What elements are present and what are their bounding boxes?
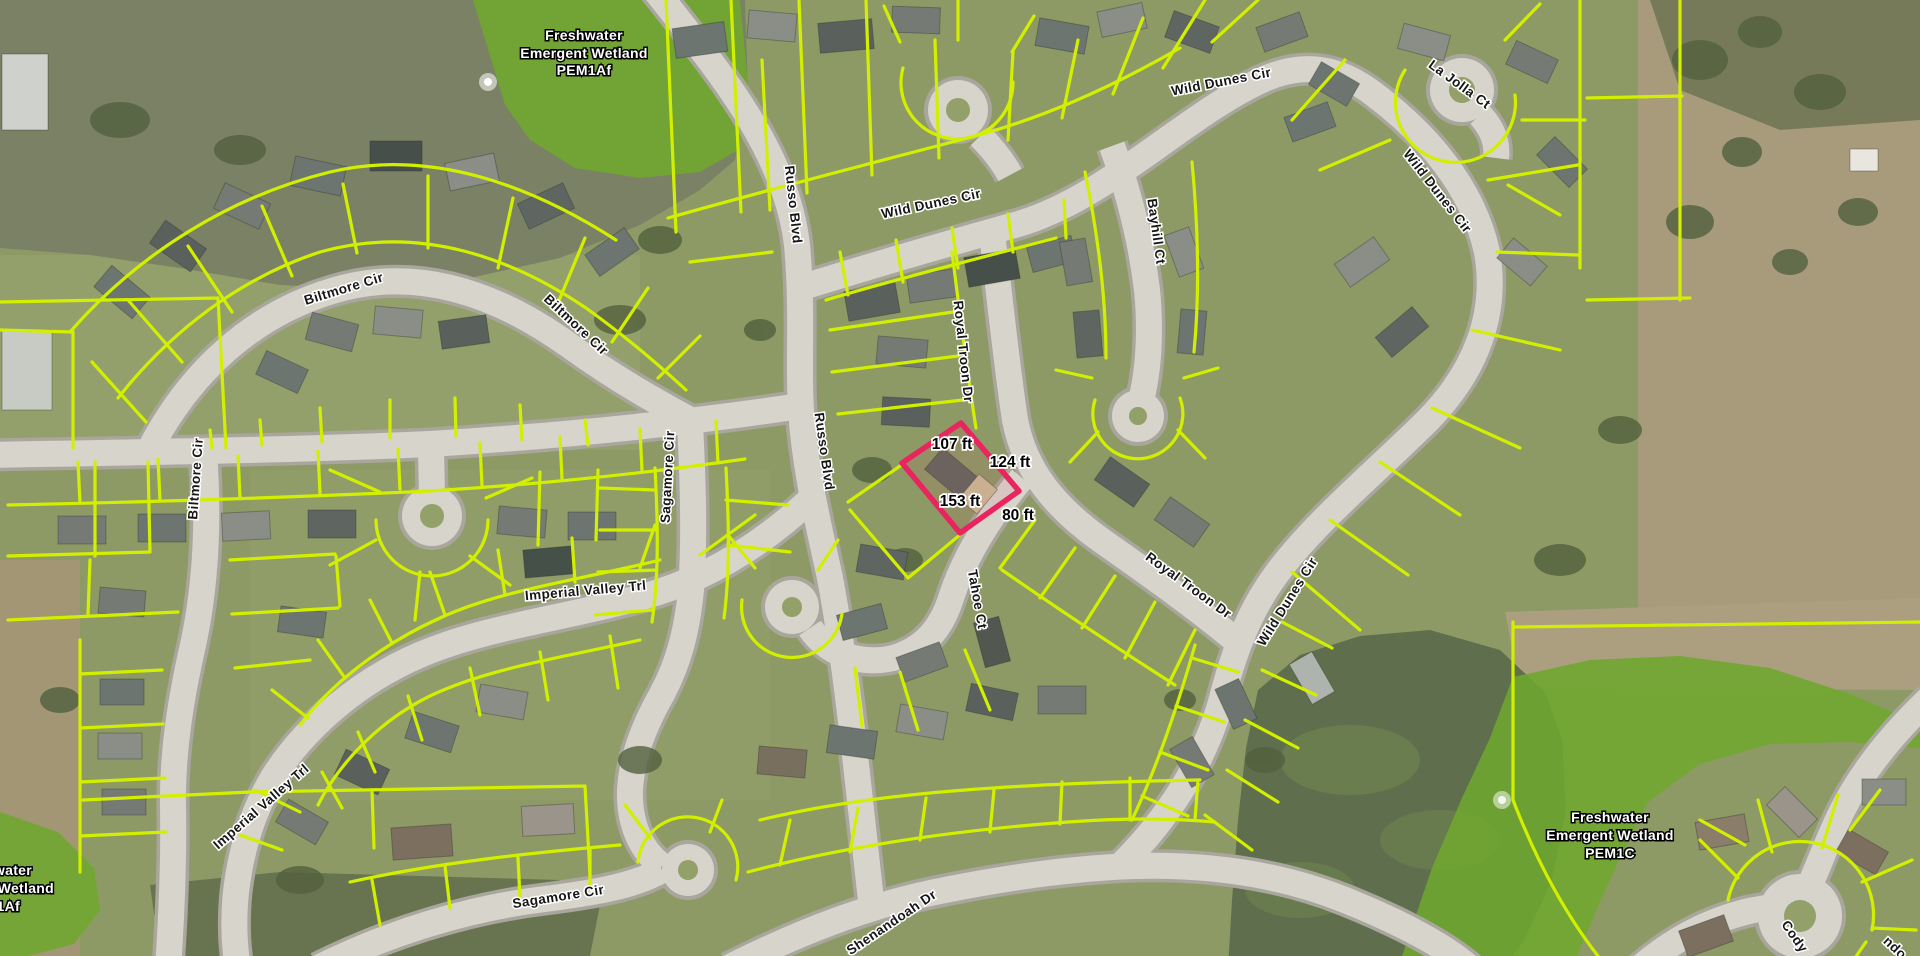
house bbox=[757, 746, 807, 778]
house bbox=[521, 804, 574, 837]
dimension-label-top: 107 ft bbox=[932, 436, 973, 453]
house bbox=[1073, 310, 1103, 358]
house bbox=[568, 512, 616, 540]
dimension-label-bottom: 80 ft bbox=[1002, 507, 1034, 524]
house bbox=[308, 510, 356, 538]
house bbox=[1862, 779, 1906, 805]
house bbox=[391, 824, 453, 860]
house bbox=[1850, 149, 1878, 171]
house bbox=[881, 397, 930, 427]
house bbox=[221, 511, 270, 541]
wetland-pem1af-line3: PEM1Af bbox=[557, 62, 612, 78]
house bbox=[826, 725, 877, 759]
dimension-label-right: 124 ft bbox=[990, 454, 1031, 471]
house bbox=[2, 54, 48, 130]
house bbox=[373, 306, 423, 338]
wetland-pem1c-line1: Freshwater bbox=[1571, 809, 1649, 825]
wetland-pem1c-line3: PEM1C bbox=[1585, 845, 1635, 861]
house bbox=[523, 546, 573, 578]
house bbox=[438, 315, 489, 349]
house bbox=[138, 514, 186, 542]
house bbox=[1177, 309, 1207, 355]
house bbox=[747, 10, 797, 42]
house bbox=[892, 6, 941, 34]
house bbox=[2, 330, 52, 410]
wetland-pem1af-line2: Emergent Wetland bbox=[520, 45, 647, 61]
house bbox=[58, 516, 106, 544]
map-svg: 107 ft 124 ft 153 ft 80 ft Russo Blvd Ru… bbox=[0, 0, 1920, 956]
house bbox=[102, 789, 146, 815]
wetland-edge-line1: water bbox=[0, 862, 32, 878]
house bbox=[1038, 686, 1086, 714]
dimension-label-left: 153 ft bbox=[940, 493, 981, 510]
aerial-map-canvas[interactable]: 107 ft 124 ft 153 ft 80 ft Russo Blvd Ru… bbox=[0, 0, 1920, 956]
wetland-edge-line3: 1Af bbox=[0, 898, 20, 914]
house bbox=[100, 679, 144, 705]
wetland-pem1c-line2: Emergent Wetland bbox=[1546, 827, 1673, 843]
wetland-edge-line2: Wetland bbox=[0, 880, 54, 896]
wetland-pem1af-line1: Freshwater bbox=[545, 27, 623, 43]
house bbox=[98, 733, 142, 759]
